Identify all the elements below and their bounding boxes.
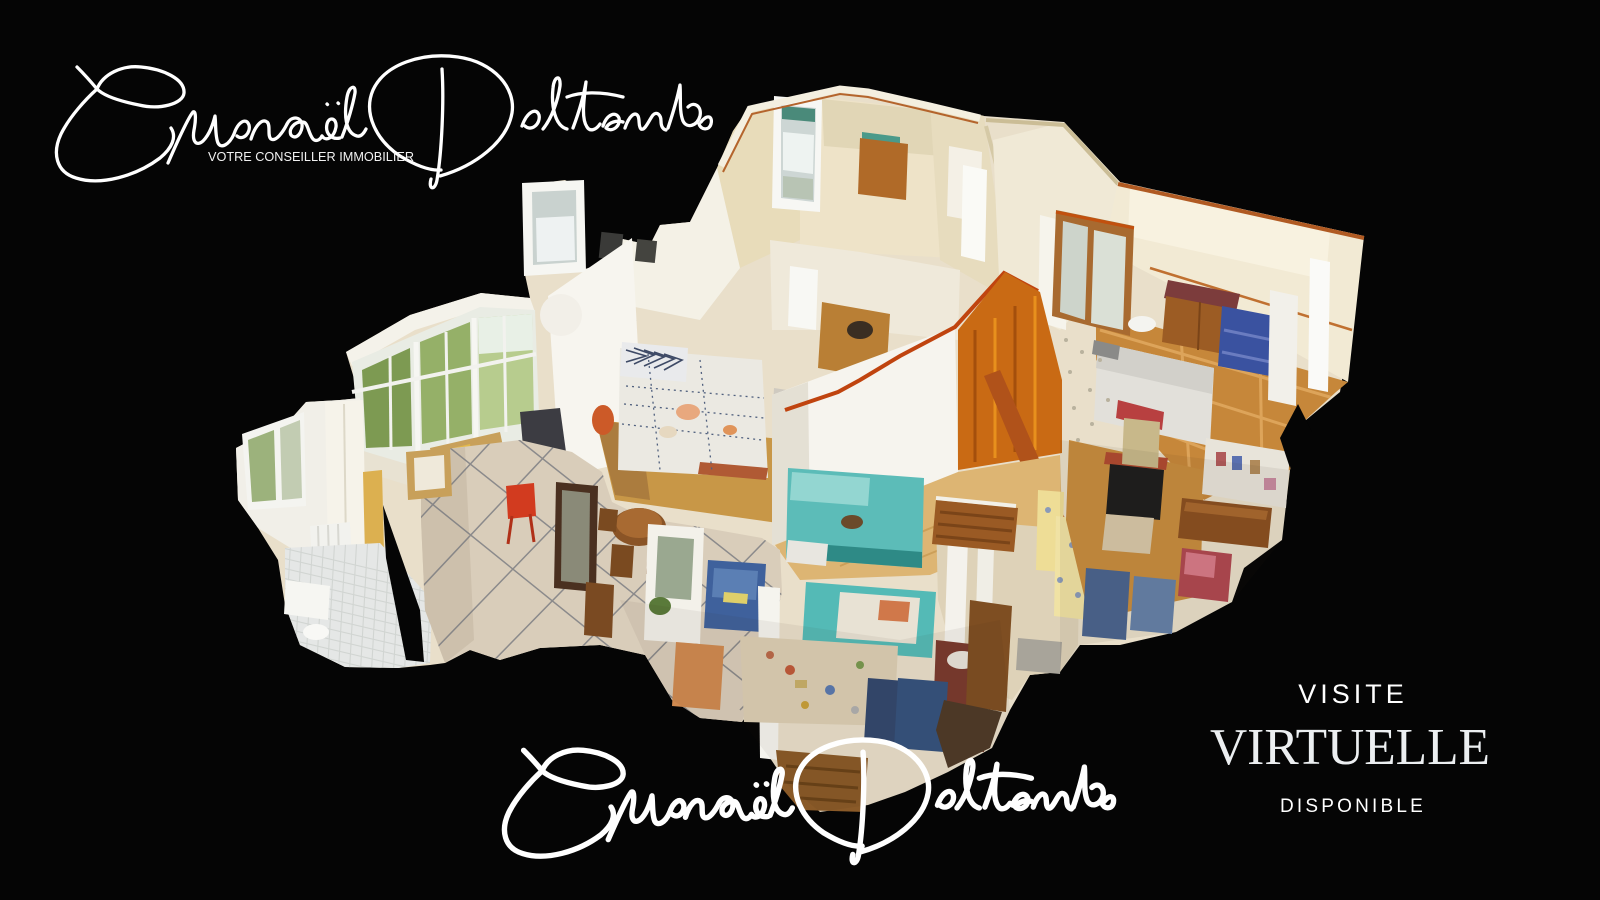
svg-text:VIRTUELLE: VIRTUELLE (1210, 719, 1490, 776)
svg-text:VOTRE CONSEILLER IMMOBILIER: VOTRE CONSEILLER IMMOBILIER (208, 150, 414, 164)
svg-text:DISPONIBLE: DISPONIBLE (1280, 796, 1426, 817)
svg-text:VISITE: VISITE (1298, 679, 1408, 709)
